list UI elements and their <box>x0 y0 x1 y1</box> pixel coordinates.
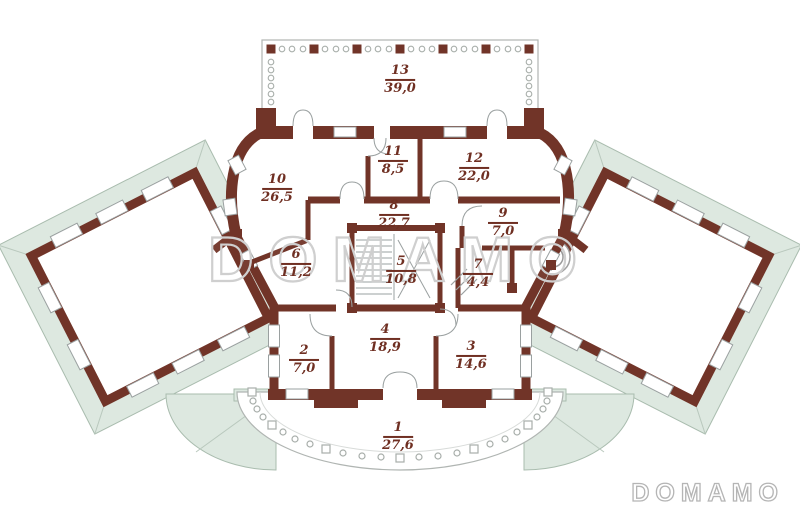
room-area: 8,5 <box>378 163 408 177</box>
room-number: 3 <box>455 340 487 354</box>
room-area: 26,5 <box>261 191 293 205</box>
room-label-10: 10 26,5 <box>261 173 293 205</box>
room-area: 22,0 <box>458 170 490 184</box>
room-label-1: 1 27,6 <box>382 421 414 453</box>
room-label-2: 2 7,0 <box>289 344 319 376</box>
room-number: 1 <box>382 421 414 435</box>
room-number: 13 <box>384 64 416 78</box>
room-area: 22,7 <box>378 217 410 231</box>
room-area: 14,6 <box>455 358 487 372</box>
room-number: 9 <box>488 207 518 221</box>
room-number: 8 <box>378 199 410 213</box>
room-area: 11,2 <box>280 266 312 280</box>
brand-logo: DOMAMO <box>631 479 784 508</box>
room-number: 12 <box>458 152 490 166</box>
room-number: 2 <box>289 344 319 358</box>
room-label-11: 11 8,5 <box>378 145 408 177</box>
room-area: 27,6 <box>382 439 414 453</box>
room-area: 7,0 <box>289 362 319 376</box>
room-number: 10 <box>261 173 293 187</box>
room-label-4: 4 18,9 <box>369 323 401 355</box>
room-label-5: 5 10,8 <box>385 255 417 287</box>
room-label-12: 12 22,0 <box>458 152 490 184</box>
floor-plan-canvas: DOMAMO DOMAMO 13 39,0 10 26,5 11 8,5 12 … <box>0 0 800 514</box>
room-label-7: 7 4,4 <box>463 258 493 290</box>
room-number: 6 <box>280 248 312 262</box>
room-label-13: 13 39,0 <box>384 64 416 96</box>
room-area: 18,9 <box>369 341 401 355</box>
room-label-6: 6 11,2 <box>280 248 312 280</box>
room-label-9: 9 7,0 <box>488 207 518 239</box>
room-number: 5 <box>385 255 417 269</box>
room-area: 7,0 <box>488 225 518 239</box>
room-area: 10,8 <box>385 273 417 287</box>
room-label-3: 3 14,6 <box>455 340 487 372</box>
room-number: 11 <box>378 145 408 159</box>
room-number: 7 <box>463 258 493 272</box>
room-number: 4 <box>369 323 401 337</box>
room-label-8: 8 22,7 <box>378 199 410 231</box>
room-area: 39,0 <box>384 82 416 96</box>
room-area: 4,4 <box>463 276 493 290</box>
